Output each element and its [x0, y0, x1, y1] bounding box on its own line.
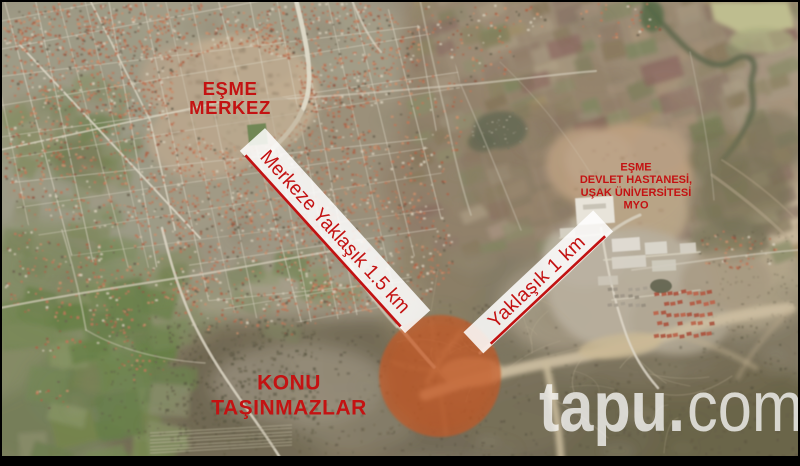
svg-text:MERKEZ: MERKEZ — [189, 97, 271, 118]
svg-text:UŞAK ÜNİVERSİTESİ: UŞAK ÜNİVERSİTESİ — [581, 186, 692, 199]
svg-text:MYO: MYO — [623, 200, 649, 212]
svg-text:DEVLET HASTANESİ,: DEVLET HASTANESİ, — [580, 173, 692, 186]
svg-text:tapu.com: tapu.com — [539, 368, 800, 447]
svg-text:EŞME: EŞME — [203, 78, 258, 99]
svg-text:KONU: KONU — [257, 372, 321, 395]
svg-text:EŞME: EŞME — [620, 162, 651, 174]
svg-text:TAŞINMAZLAR: TAŞINMAZLAR — [211, 397, 367, 420]
